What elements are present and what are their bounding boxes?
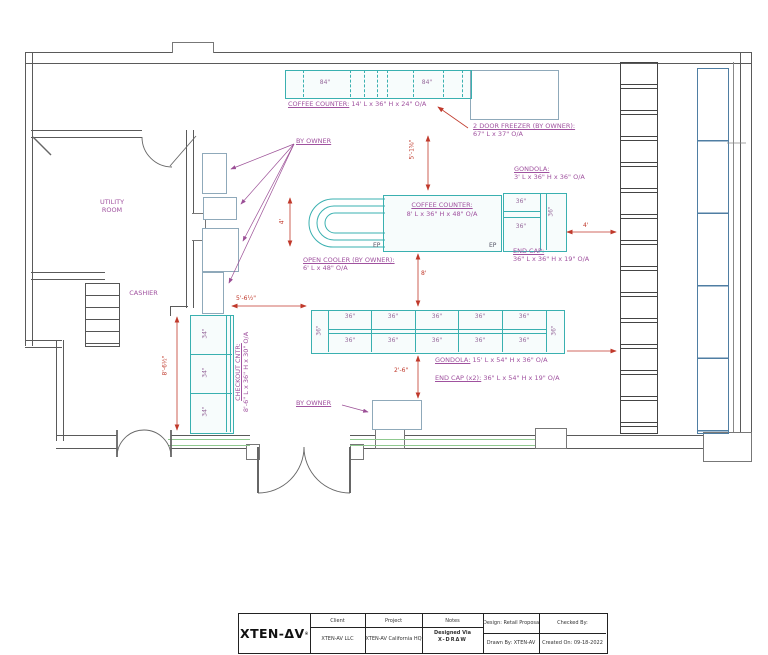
ep-label-left: EP [373, 242, 380, 249]
section-label: 84" [315, 79, 335, 86]
section-label: 36" [335, 337, 365, 344]
checkout-spec: 8'-6" L x 36" H x 30" O/A [242, 316, 250, 428]
section-label: 36" [316, 324, 323, 338]
project-header: Project [365, 618, 422, 624]
island-counter-label: COFFEE COUNTER: [388, 201, 496, 209]
section-label: 36" [509, 313, 539, 320]
drawn-by-value: Drawn By: XTEN-AV [483, 640, 539, 646]
open-cooler-u-shape [309, 199, 385, 247]
section-label: 36" [551, 324, 558, 338]
cashier-label: CASHIER [116, 289, 171, 297]
section-label: 34" [202, 405, 209, 419]
dim-aisle-mid: 8' [421, 270, 426, 277]
island-counter-spec: 8' L x 36" H x 48" O/A [388, 210, 496, 218]
entry-door [258, 447, 350, 493]
by-owner-bottom-label: BY OWNER [296, 399, 331, 407]
dim-endcap-wall: 4' [583, 222, 588, 229]
dim-cooler-depth: 4' [279, 214, 286, 230]
section-label: 34" [202, 327, 209, 341]
xdraw-logo: X-DRΔW [422, 637, 483, 643]
section-label: 36" [548, 205, 555, 219]
coffee-counter-top-label: COFFEE COUNTER: 14' L x 36" H x 24" O/A [288, 100, 426, 108]
client-value: XTEN-AV LLC [310, 636, 365, 642]
open-cooler-label: OPEN COOLER (BY OWNER): [303, 256, 395, 264]
section-label: 36" [509, 337, 539, 344]
dim-aisle-rear: 2'-6" [394, 367, 408, 374]
end-cap-small-label: END CAP: [513, 247, 544, 255]
section-label: 36" [465, 337, 495, 344]
floor-plan-sheet: COFFEE COUNTER: 14' L x 36" H x 24" O/A … [0, 0, 768, 655]
gondola-small-label: GONDOLA: [514, 165, 549, 173]
section-label: 36" [510, 198, 532, 205]
client-header: Client [310, 618, 365, 624]
section-label: 84" [417, 79, 437, 86]
designed-via: Designed Via [422, 630, 483, 636]
title-block-divider [310, 627, 483, 628]
xtenav-logo: XTEN-ΔV® [239, 614, 310, 653]
side-door [117, 430, 171, 457]
by-owner-top-label: BY OWNER [296, 137, 331, 145]
utility-line1: UTILITY [82, 198, 142, 206]
gondola-small-spec: 3' L x 36" H x 36" O/A [514, 173, 585, 181]
gondola-long-label: GONDOLA: 15' L x 54" H x 36" O/A [435, 356, 548, 364]
logo-mark: ® [305, 631, 309, 636]
checkout-label: CHECKOUT CNTR: 8'-6" L x 36" H x 30" O/A [234, 316, 250, 428]
section-label: 34" [202, 366, 209, 380]
created-on-value: Created On: 09-18-2022 [539, 640, 606, 646]
dim-front-gap: 5'-6½" [236, 295, 256, 302]
design-value: Design: Retail Proposal [483, 620, 539, 626]
dim-freezer-gap: 5'-1⅝" [409, 132, 416, 168]
title-block-divider [483, 633, 606, 634]
project-value: XTEN-AV California HQ [365, 636, 422, 642]
checkout-title: CHECKOUT CNTR: [234, 316, 242, 428]
freezer-spec: 67" L x 37" O/A [473, 130, 523, 138]
utility-room-label: UTILITY ROOM [82, 198, 142, 214]
end-cap-small-spec: 36" L x 36" H x 19" O/A [513, 255, 589, 263]
section-label: 36" [378, 313, 408, 320]
freezer-label: 2 DOOR FREEZER (BY OWNER): [473, 122, 575, 130]
utility-line2: ROOM [82, 206, 142, 214]
logo-text: XTEN-ΔV [240, 626, 305, 641]
plan-linework [0, 0, 768, 655]
section-label: 36" [465, 313, 495, 320]
utility-door [33, 136, 196, 167]
dim-checkout-length: 8'-6½" [162, 351, 169, 381]
title-block: XTEN-ΔV® Client XTEN-AV LLC Project XTEN… [238, 613, 608, 654]
section-label: 36" [510, 223, 532, 230]
section-label: 36" [422, 313, 452, 320]
section-label: 36" [335, 313, 365, 320]
open-cooler-spec: 6' L x 48" O/A [303, 264, 348, 272]
end-cap-long-label: END CAP (x2): 36" L x 54" H x 19" O/A [435, 374, 560, 382]
section-label: 36" [378, 337, 408, 344]
notes-header: Notes [422, 618, 483, 624]
ep-label-right: EP [489, 242, 496, 249]
section-label: 36" [422, 337, 452, 344]
checked-by-header: Checked By: [539, 620, 606, 626]
